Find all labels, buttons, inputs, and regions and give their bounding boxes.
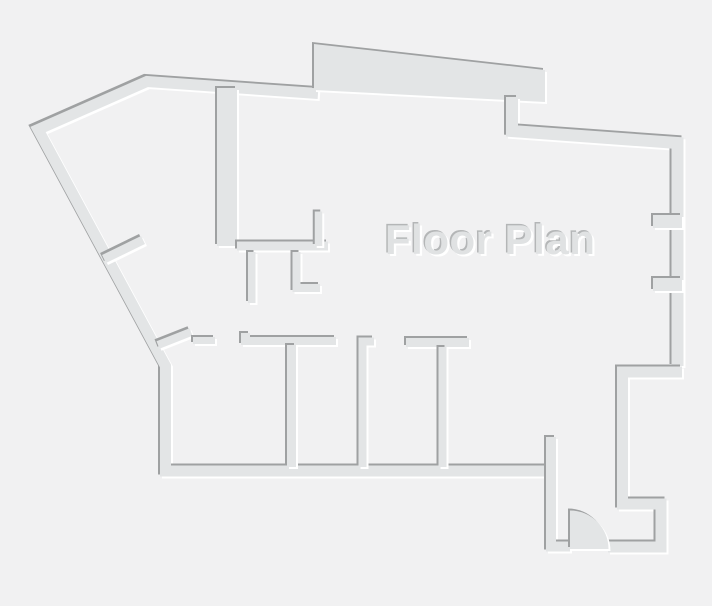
floor-plan-svg: [0, 0, 712, 606]
exterior-bottom-right-wall: [608, 372, 682, 547]
entry-left-wall: [551, 437, 570, 547]
lower-corridor-wall: [241, 337, 336, 341]
closet-wall-b: [297, 252, 321, 288]
diagonal-door-stub: [158, 332, 191, 345]
balcony-slab: [314, 44, 545, 102]
room-divider-2: [363, 342, 375, 468]
entry-door-swing: [570, 511, 609, 550]
floor-plan-canvas: Floor Plan: [0, 0, 712, 606]
floor-plan-title: Floor Plan: [385, 219, 595, 261]
walls-layer: [38, 44, 682, 549]
diagonal-wall-jamb: [104, 240, 143, 259]
